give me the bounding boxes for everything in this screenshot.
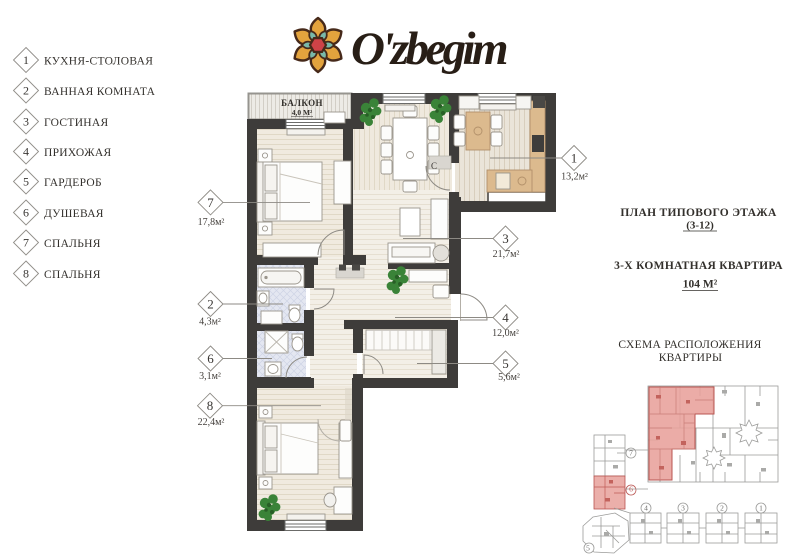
svg-text:13,2м²: 13,2м²: [561, 172, 588, 183]
svg-text:1: 1: [571, 151, 578, 166]
svg-text:7: 7: [23, 236, 29, 250]
svg-text:7: 7: [207, 195, 214, 210]
svg-text:2: 2: [207, 297, 214, 312]
svg-text:3,1м²: 3,1м²: [199, 371, 221, 382]
svg-text:3: 3: [23, 115, 29, 129]
svg-text:5,6м²: 5,6м²: [498, 372, 520, 383]
svg-text:1: 1: [23, 53, 29, 67]
svg-text:2: 2: [720, 504, 724, 513]
svg-text:104 М²: 104 М²: [683, 279, 718, 291]
svg-text:1: 1: [759, 504, 763, 513]
svg-text:17,8м²: 17,8м²: [198, 217, 225, 228]
svg-text:4: 4: [502, 310, 509, 325]
svg-text:СПАЛЬНЯ: СПАЛЬНЯ: [44, 238, 101, 250]
svg-text:КВАРТИРЫ: КВАРТИРЫ: [659, 352, 723, 364]
svg-text:22,4м²: 22,4м²: [198, 417, 225, 428]
svg-text:5: 5: [502, 356, 509, 371]
svg-text:4: 4: [23, 145, 29, 159]
svg-text:3: 3: [681, 504, 685, 513]
svg-text:ГОСТИНАЯ: ГОСТИНАЯ: [44, 117, 109, 129]
svg-text:(3-12): (3-12): [686, 220, 714, 232]
svg-text:4,3м²: 4,3м²: [199, 317, 221, 328]
svg-text:4: 4: [644, 504, 648, 513]
svg-text:12,0м²: 12,0м²: [492, 328, 519, 339]
svg-text:ПЛАН ТИПОВОГО ЭТАЖА: ПЛАН ТИПОВОГО ЭТАЖА: [620, 207, 777, 219]
svg-text:ДУШЕВАЯ: ДУШЕВАЯ: [44, 208, 104, 220]
svg-text:21,7м²: 21,7м²: [493, 249, 520, 260]
svg-text:ВАННАЯ КОМНАТА: ВАННАЯ КОМНАТА: [44, 86, 156, 98]
svg-text:6: 6: [629, 485, 633, 494]
svg-text:КУХНЯ-СТОЛОВАЯ: КУХНЯ-СТОЛОВАЯ: [44, 56, 153, 68]
svg-text:5: 5: [23, 175, 29, 189]
svg-text:6: 6: [23, 206, 29, 220]
svg-text:O'zbegim: O'zbegim: [351, 23, 507, 75]
svg-text:ПРИХОЖАЯ: ПРИХОЖАЯ: [44, 147, 111, 159]
svg-text:2: 2: [23, 84, 29, 98]
svg-text:7: 7: [629, 449, 633, 458]
svg-text:8: 8: [207, 398, 214, 413]
svg-text:3: 3: [502, 231, 509, 246]
svg-text:5: 5: [586, 544, 590, 553]
svg-text:СПАЛЬНЯ: СПАЛЬНЯ: [44, 269, 101, 281]
svg-text:БАЛКОН: БАЛКОН: [281, 98, 323, 108]
svg-text:4,0 М²: 4,0 М²: [292, 108, 313, 117]
svg-text:СХЕМА РАСПОЛОЖЕНИЯ: СХЕМА РАСПОЛОЖЕНИЯ: [618, 339, 761, 351]
svg-text:6: 6: [207, 351, 214, 366]
svg-text:С: С: [431, 161, 437, 171]
svg-text:ГАРДЕРОБ: ГАРДЕРОБ: [44, 177, 102, 189]
svg-text:8: 8: [23, 267, 29, 281]
svg-text:3-Х КОМНАТНАЯ КВАРТИРА: 3-Х КОМНАТНАЯ КВАРТИРА: [614, 260, 783, 272]
